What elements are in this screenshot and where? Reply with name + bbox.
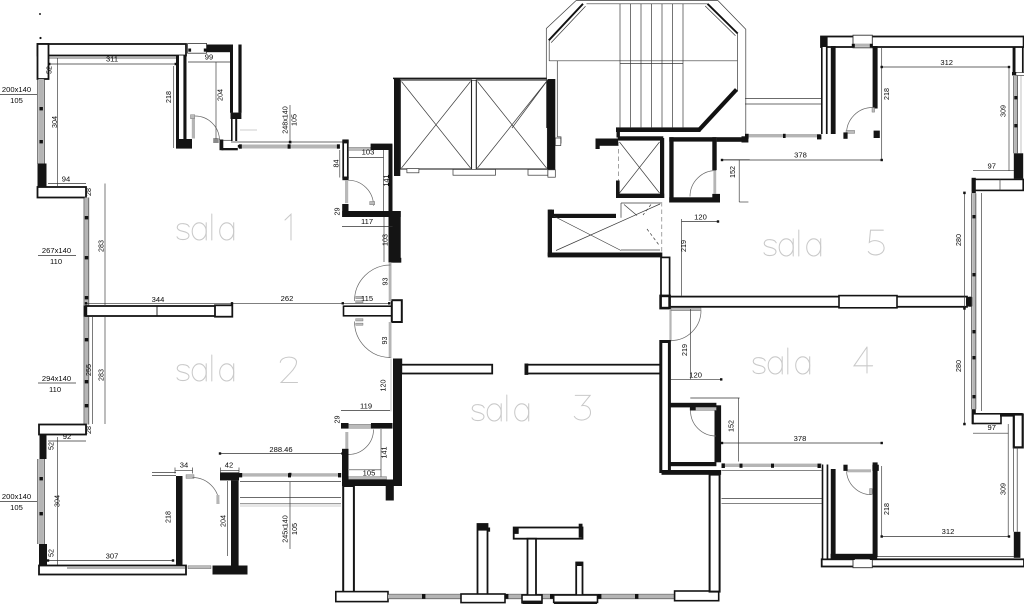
- svg-text:218: 218: [164, 91, 173, 103]
- svg-text:255: 255: [84, 364, 93, 376]
- svg-text:378: 378: [794, 151, 807, 160]
- svg-text:92: 92: [63, 432, 71, 441]
- svg-text:152: 152: [728, 166, 737, 178]
- svg-text:52: 52: [47, 442, 56, 450]
- svg-text:283: 283: [97, 240, 106, 252]
- svg-text:248x140: 248x140: [281, 106, 290, 134]
- svg-text:280: 280: [954, 360, 963, 372]
- svg-text:94: 94: [62, 175, 70, 184]
- svg-text:218: 218: [882, 503, 891, 515]
- svg-text:105: 105: [10, 503, 23, 512]
- svg-text:262: 262: [281, 294, 294, 303]
- svg-text:120: 120: [694, 213, 707, 222]
- svg-text:344: 344: [152, 295, 165, 304]
- svg-text:28: 28: [84, 188, 93, 196]
- svg-text:218: 218: [164, 511, 173, 523]
- svg-text:294x140: 294x140: [42, 374, 71, 383]
- svg-text:34: 34: [180, 461, 188, 470]
- svg-text:105: 105: [290, 114, 299, 126]
- svg-text:110: 110: [49, 385, 61, 394]
- svg-text:309: 309: [999, 483, 1008, 495]
- svg-text:200x140: 200x140: [2, 492, 31, 501]
- svg-text:312: 312: [942, 527, 955, 536]
- svg-text:267x140: 267x140: [42, 246, 71, 255]
- svg-text:288.46: 288.46: [269, 445, 292, 454]
- svg-text:105: 105: [363, 469, 376, 478]
- svg-text:141: 141: [380, 447, 389, 459]
- svg-text:93: 93: [381, 278, 390, 286]
- svg-text:311: 311: [106, 55, 118, 64]
- svg-text:245x140: 245x140: [281, 515, 290, 543]
- svg-text:283: 283: [97, 369, 106, 381]
- svg-text:117: 117: [361, 217, 373, 226]
- svg-text:307: 307: [106, 552, 119, 561]
- svg-text:309: 309: [999, 105, 1008, 117]
- svg-text:103: 103: [362, 148, 375, 157]
- svg-text:219: 219: [679, 240, 688, 252]
- svg-text:378: 378: [794, 434, 807, 443]
- svg-text:218: 218: [882, 88, 891, 100]
- svg-text:105: 105: [290, 523, 299, 535]
- svg-text:105: 105: [10, 96, 23, 105]
- svg-text:29: 29: [333, 208, 342, 216]
- svg-text:110: 110: [50, 257, 62, 266]
- svg-text:280: 280: [954, 234, 963, 246]
- svg-text:29: 29: [333, 416, 342, 424]
- svg-text:120: 120: [379, 380, 388, 392]
- svg-text:52: 52: [47, 549, 56, 557]
- svg-text:304: 304: [53, 495, 62, 507]
- svg-text:200x140: 200x140: [2, 85, 31, 94]
- svg-text:93: 93: [380, 337, 389, 345]
- svg-text:84: 84: [332, 160, 341, 168]
- svg-text:120: 120: [689, 371, 702, 380]
- svg-text:115: 115: [361, 294, 373, 303]
- svg-text:304: 304: [50, 116, 59, 128]
- svg-text:119: 119: [360, 402, 372, 411]
- svg-text:42: 42: [225, 461, 233, 470]
- svg-text:204: 204: [219, 515, 228, 527]
- svg-text:103: 103: [381, 234, 390, 246]
- svg-text:152: 152: [727, 420, 736, 432]
- svg-text:312: 312: [940, 58, 953, 67]
- svg-text:97: 97: [987, 423, 995, 432]
- svg-text:52: 52: [45, 66, 54, 74]
- svg-text:204: 204: [216, 89, 225, 101]
- svg-text:219: 219: [680, 344, 689, 356]
- svg-text:28: 28: [84, 426, 93, 434]
- svg-text:97: 97: [987, 162, 995, 171]
- svg-text:99: 99: [205, 53, 213, 62]
- svg-text:141: 141: [382, 175, 391, 187]
